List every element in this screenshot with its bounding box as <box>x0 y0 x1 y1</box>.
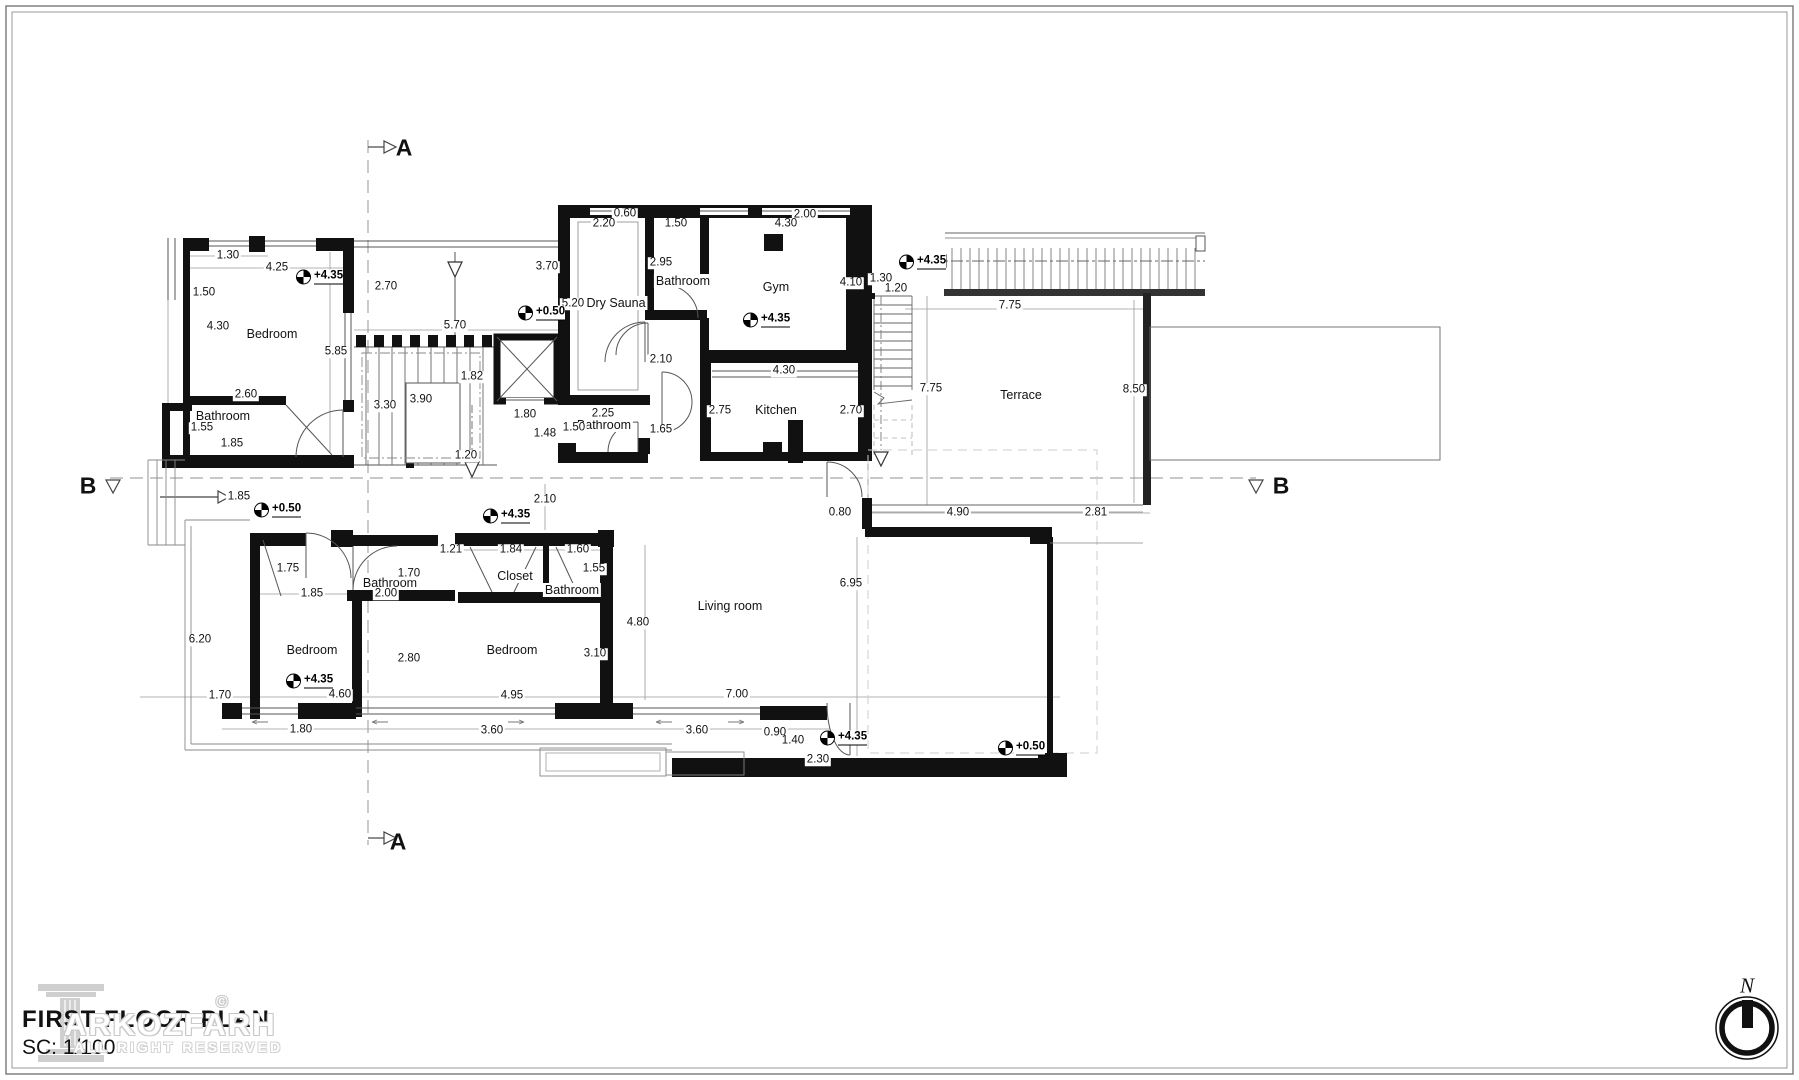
dimension-label: 0.80 <box>827 507 853 519</box>
dimension-label: 1.50 <box>663 218 689 230</box>
dimension-label: 1.85 <box>219 438 245 450</box>
dimension-label: 5.70 <box>442 320 468 332</box>
level-value: +0.50 <box>1016 741 1045 756</box>
dimension-label: 4.10 <box>838 277 864 289</box>
dimension-label: 1.82 <box>459 371 485 383</box>
dimension-label: 3.60 <box>684 725 710 737</box>
room-label: Bathroom <box>654 274 712 288</box>
level-target-icon <box>483 509 498 524</box>
north-label: N <box>1740 974 1754 999</box>
room-label: Bedroom <box>285 643 340 657</box>
level-marker: +4.35 <box>899 255 946 270</box>
level-marker: +4.35 <box>483 509 530 524</box>
watermark-brand: ARKOZFARH <box>64 1007 277 1043</box>
level-marker: +4.35 <box>743 313 790 328</box>
section-label: A <box>396 135 413 162</box>
dimension-label: 1.21 <box>438 544 464 556</box>
dimension-label: 1.50 <box>191 287 217 299</box>
level-value: +4.35 <box>501 509 530 524</box>
level-target-icon <box>998 741 1013 756</box>
dimension-label: 2.75 <box>707 405 733 417</box>
dimension-label: 7.00 <box>724 689 750 701</box>
dimension-label: 4.30 <box>205 321 231 333</box>
level-marker: +0.50 <box>518 306 565 321</box>
level-target-icon <box>286 674 301 689</box>
dimension-label: 2.30 <box>805 754 831 766</box>
dimension-label: 2.10 <box>532 494 558 506</box>
room-label: Kitchen <box>753 403 799 417</box>
level-marker: +0.50 <box>998 741 1045 756</box>
dimension-label: 1.55 <box>189 422 215 434</box>
level-target-icon <box>254 503 269 518</box>
dimension-label: 2.00 <box>373 588 399 600</box>
dimension-label: 7.75 <box>997 300 1023 312</box>
dimension-label: 6.20 <box>187 634 213 646</box>
dimension-label: 2.60 <box>233 389 259 401</box>
dimension-label: 4.90 <box>945 507 971 519</box>
dimension-label: 4.95 <box>499 690 525 702</box>
watermark-rights: ALL RIGHT RESERVED <box>74 1039 283 1055</box>
dimension-label: 2.80 <box>396 653 422 665</box>
dimension-label: 1.20 <box>883 283 909 295</box>
dimension-label: 1.70 <box>396 568 422 580</box>
level-value: +4.35 <box>917 255 946 270</box>
dimension-label: 4.25 <box>264 262 290 274</box>
dimension-label: 5.85 <box>323 346 349 358</box>
level-value: +0.50 <box>536 306 565 321</box>
room-label: Gym <box>761 280 791 294</box>
dimension-label: 3.90 <box>408 394 434 406</box>
dimension-label: 1.50 <box>561 422 587 434</box>
room-label: Dry Sauna <box>584 296 647 310</box>
room-label: Bathroom <box>543 583 601 597</box>
floor-plan-sheet: BedroomBathroomDry SaunaBathroomGymKitch… <box>0 0 1799 1080</box>
dimension-label: 1.65 <box>648 424 674 436</box>
level-target-icon <box>296 270 311 285</box>
dimension-label: 1.20 <box>453 450 479 462</box>
dimension-label: 1.85 <box>299 588 325 600</box>
level-marker: +4.35 <box>286 674 333 689</box>
dimension-label: 1.84 <box>498 544 524 556</box>
dimension-label: 1.55 <box>581 563 607 575</box>
dimension-label: 1.70 <box>207 690 233 702</box>
level-target-icon <box>820 731 835 746</box>
dimension-label: 2.20 <box>591 218 617 230</box>
dimension-label: 4.60 <box>327 689 353 701</box>
label-layer: BedroomBathroomDry SaunaBathroomGymKitch… <box>0 0 1799 1080</box>
dimension-label: 4.80 <box>625 617 651 629</box>
level-marker: +4.35 <box>296 270 343 285</box>
dimension-label: 8.50 <box>1121 384 1147 396</box>
room-label: Bedroom <box>485 643 540 657</box>
dimension-label: 7.75 <box>918 383 944 395</box>
room-label: Closet <box>495 569 534 583</box>
level-value: +4.35 <box>761 313 790 328</box>
level-target-icon <box>518 306 533 321</box>
dimension-label: 1.85 <box>226 491 252 503</box>
dimension-label: 1.40 <box>780 735 806 747</box>
room-label: Living room <box>696 599 765 613</box>
dimension-label: 1.48 <box>532 428 558 440</box>
dimension-label: 1.80 <box>288 724 314 736</box>
dimension-label: 3.60 <box>479 725 505 737</box>
dimension-label: 1.80 <box>512 409 538 421</box>
dimension-label: 1.30 <box>215 250 241 262</box>
level-value: +4.35 <box>838 731 867 746</box>
section-label: B <box>80 473 97 500</box>
dimension-label: 6.95 <box>838 578 864 590</box>
room-label: Bedroom <box>245 327 300 341</box>
dimension-label: 3.30 <box>372 400 398 412</box>
level-marker: +4.35 <box>820 731 867 746</box>
dimension-label: 1.75 <box>275 563 301 575</box>
dimension-label: 3.10 <box>582 648 608 660</box>
dimension-label: 1.60 <box>565 544 591 556</box>
level-target-icon <box>899 255 914 270</box>
level-value: +4.35 <box>314 270 343 285</box>
section-label: A <box>390 829 407 856</box>
dimension-label: 2.25 <box>590 408 616 420</box>
dimension-label: 2.81 <box>1083 507 1109 519</box>
dimension-label: 4.30 <box>773 218 799 230</box>
level-value: +4.35 <box>304 674 333 689</box>
dimension-label: 2.10 <box>648 354 674 366</box>
dimension-label: 4.30 <box>771 365 797 377</box>
level-value: +0.50 <box>272 503 301 518</box>
dimension-label: 2.70 <box>838 405 864 417</box>
section-label: B <box>1273 473 1290 500</box>
room-label: Terrace <box>998 388 1044 402</box>
dimension-label: 2.70 <box>373 281 399 293</box>
level-marker: +0.50 <box>254 503 301 518</box>
dimension-label: 2.95 <box>648 257 674 269</box>
copyright-icon: © <box>216 994 228 1012</box>
dimension-label: 3.70 <box>534 261 560 273</box>
level-target-icon <box>743 313 758 328</box>
